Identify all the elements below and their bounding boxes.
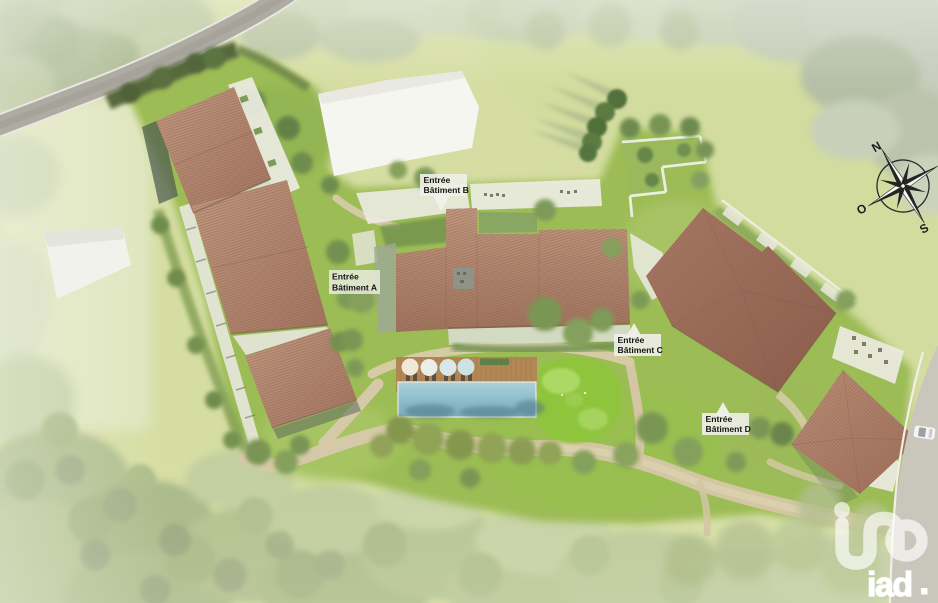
svg-text:Bâtiment D: Bâtiment D bbox=[706, 424, 751, 434]
svg-text:Entrée: Entrée bbox=[706, 414, 733, 424]
svg-text:Bâtiment C: Bâtiment C bbox=[618, 345, 663, 355]
svg-text:Entrée: Entrée bbox=[618, 335, 645, 345]
svg-text:Entrée: Entrée bbox=[332, 272, 359, 282]
svg-text:Bâtiment B: Bâtiment B bbox=[424, 185, 469, 195]
svg-text:iad: iad bbox=[867, 566, 912, 603]
svg-text:Entrée: Entrée bbox=[424, 175, 451, 185]
svg-text:Bâtiment A: Bâtiment A bbox=[332, 283, 377, 293]
